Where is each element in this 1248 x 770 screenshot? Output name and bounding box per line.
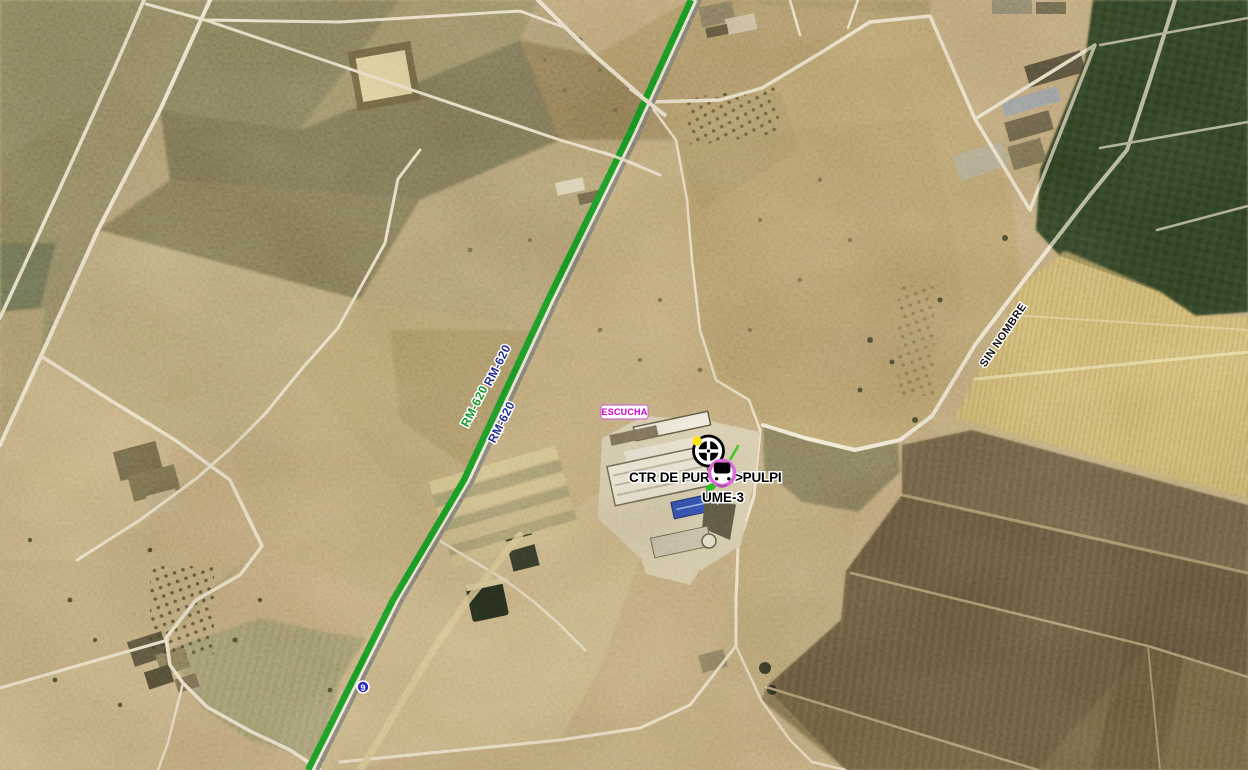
svg-text:CTR DE PUR: CTR DE PUR (629, 470, 710, 485)
svg-text:UME-3: UME-3 (702, 490, 744, 505)
svg-text:>PULPI: >PULPI (735, 470, 781, 485)
svg-text:9: 9 (360, 683, 365, 693)
svg-text:ESCUCHA: ESCUCHA (602, 407, 648, 417)
